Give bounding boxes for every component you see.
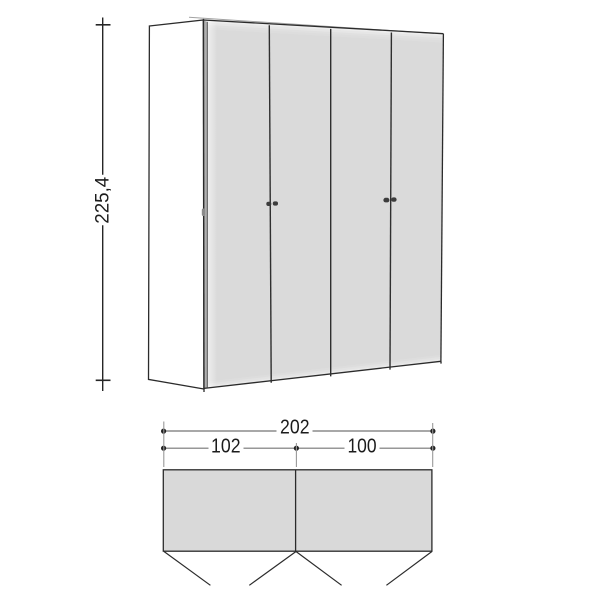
svg-text:102: 102: [211, 436, 241, 458]
svg-text:202: 202: [280, 416, 310, 438]
svg-text:100: 100: [347, 435, 376, 457]
svg-text:225,4: 225,4: [92, 176, 113, 223]
